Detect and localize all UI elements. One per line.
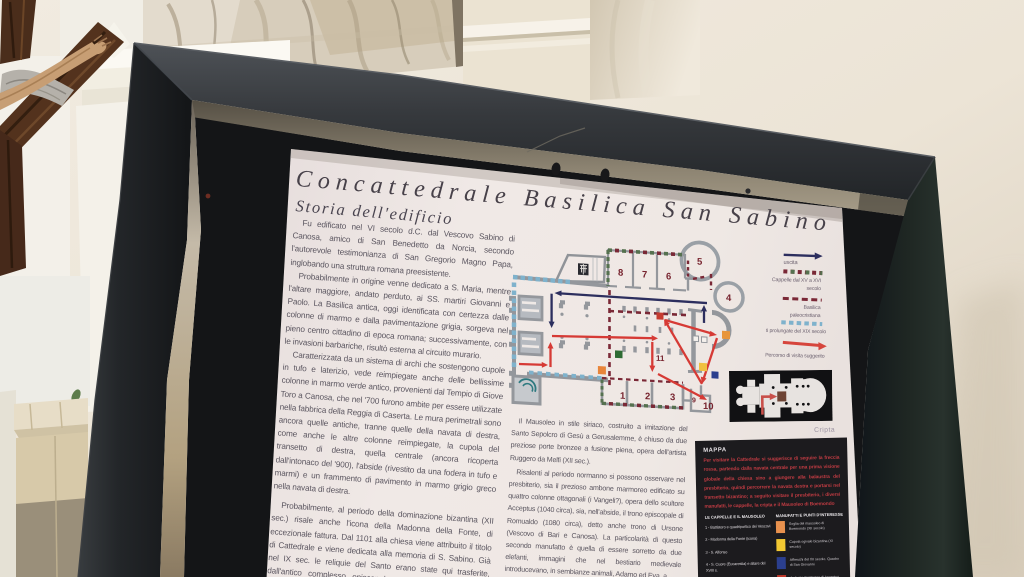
svg-text:6: 6 <box>666 271 671 282</box>
svg-text:secolo: secolo <box>807 286 822 292</box>
svg-text:10: 10 <box>703 401 714 413</box>
svg-text:4: 4 <box>726 293 732 304</box>
svg-text:11: 11 <box>656 354 665 364</box>
svg-text:5: 5 <box>697 257 703 268</box>
svg-text:Basilica: Basilica <box>803 305 820 311</box>
svg-text:uscita: uscita <box>783 260 798 266</box>
svg-text:7: 7 <box>642 269 647 280</box>
svg-text:Parti prolungate del XIX secol: Parti prolungate del XIX secolo <box>765 328 826 335</box>
svg-text:3: 3 <box>670 392 675 403</box>
svg-text:9: 9 <box>692 397 696 404</box>
svg-text:Cappelle dal XV a XVI: Cappelle dal XV a XVI <box>772 277 821 284</box>
svg-text:2: 2 <box>645 391 650 402</box>
svg-text:1: 1 <box>620 391 626 402</box>
svg-text:8: 8 <box>618 268 623 279</box>
svg-text:Percorso di visita suggerito: Percorso di visita suggerito <box>765 352 825 359</box>
svg-text:paleocristiana: paleocristiana <box>790 312 821 319</box>
